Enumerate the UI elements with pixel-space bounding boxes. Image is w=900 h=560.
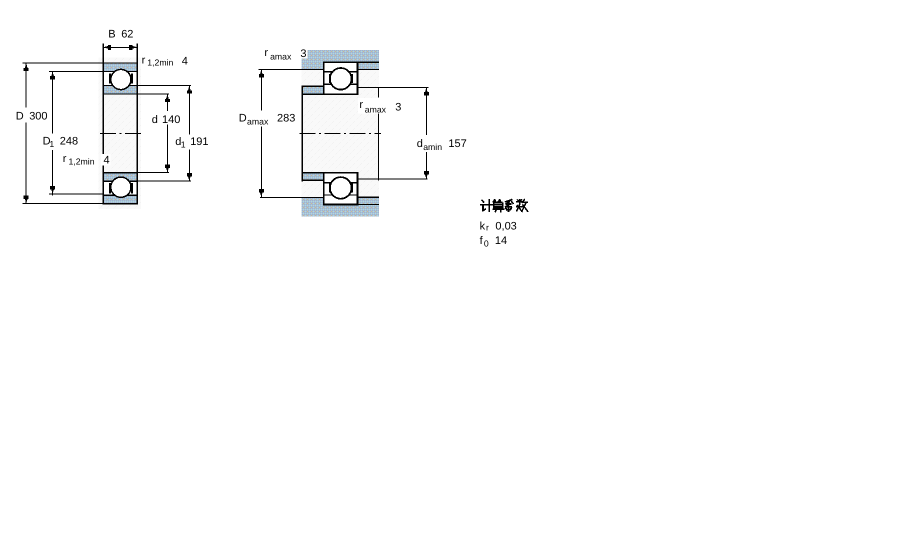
svg-text:kr0,03: kr0,03 (480, 220, 517, 232)
svg-text:Damax283: Damax283 (239, 113, 296, 127)
svg-text:d140: d140 (152, 114, 181, 126)
svg-text:d1191: d1191 (175, 136, 208, 150)
svg-text:D300: D300 (16, 110, 48, 122)
svg-text:ramax3: ramax3 (264, 47, 306, 62)
svg-text:r1,2min4: r1,2min4 (142, 55, 188, 68)
svg-text:damin157: damin157 (417, 138, 467, 152)
svg-text:r1,2min4: r1,2min4 (63, 153, 110, 166)
svg-text:f014: f014 (480, 235, 508, 249)
svg-text:B62: B62 (108, 29, 133, 41)
svg-text:D1248: D1248 (43, 136, 79, 150)
